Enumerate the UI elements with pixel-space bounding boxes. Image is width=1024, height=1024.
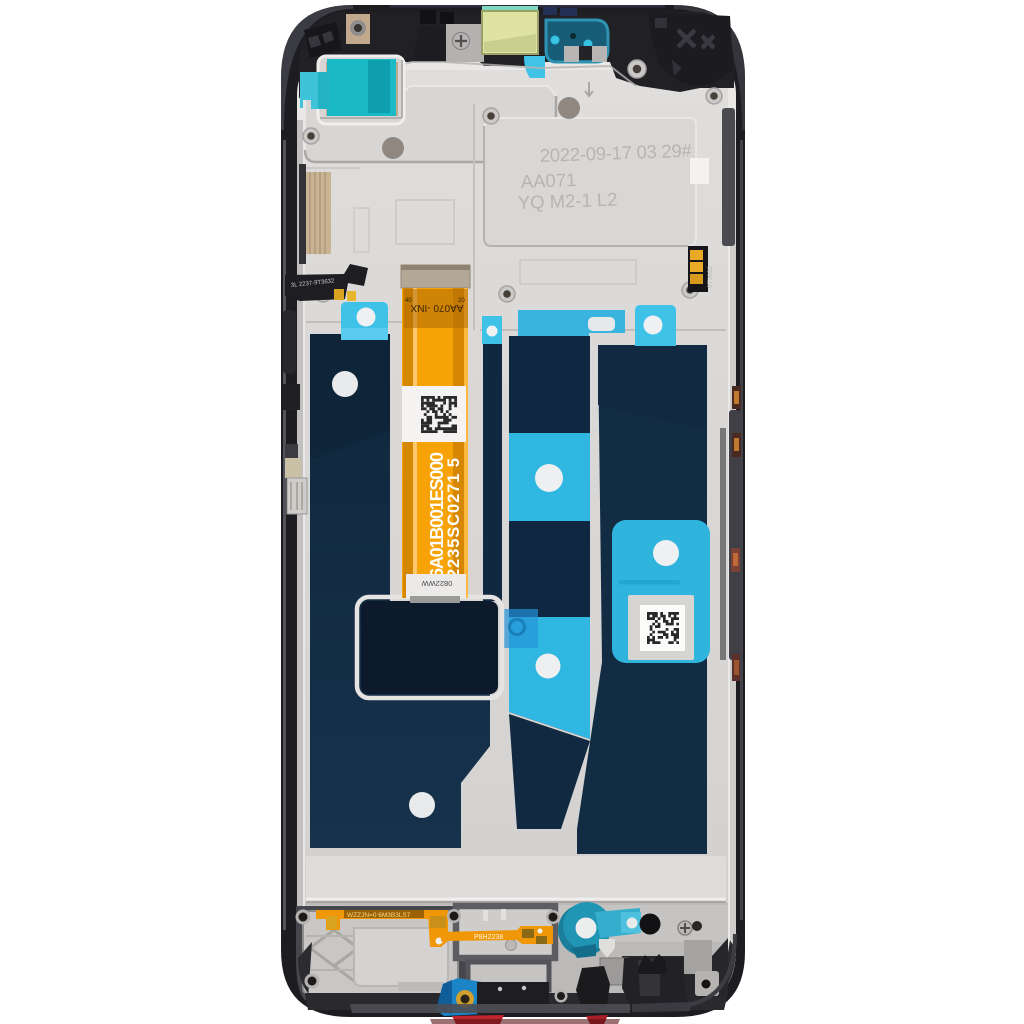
- svg-text:40: 40: [405, 298, 412, 304]
- svg-text:AA070 -INX: AA070 -INX: [410, 302, 463, 313]
- svg-text:0822WW: 0822WW: [421, 579, 453, 588]
- svg-text:9T3632: 9T3632: [707, 266, 714, 288]
- svg-text:WZZJN=0 6M3B3LS7: WZZJN=0 6M3B3LS7: [347, 912, 411, 919]
- svg-text:20: 20: [458, 298, 465, 304]
- svg-text:AA071: AA071: [520, 169, 576, 192]
- svg-text:YQ M2-1 L2: YQ M2-1 L2: [517, 189, 617, 213]
- svg-text:6A01B001ES000: 6A01B001ES000: [427, 452, 447, 578]
- svg-text:P8H2238: P8H2238: [474, 934, 503, 941]
- svg-text:2235SC0271 5: 2235SC0271 5: [445, 458, 463, 578]
